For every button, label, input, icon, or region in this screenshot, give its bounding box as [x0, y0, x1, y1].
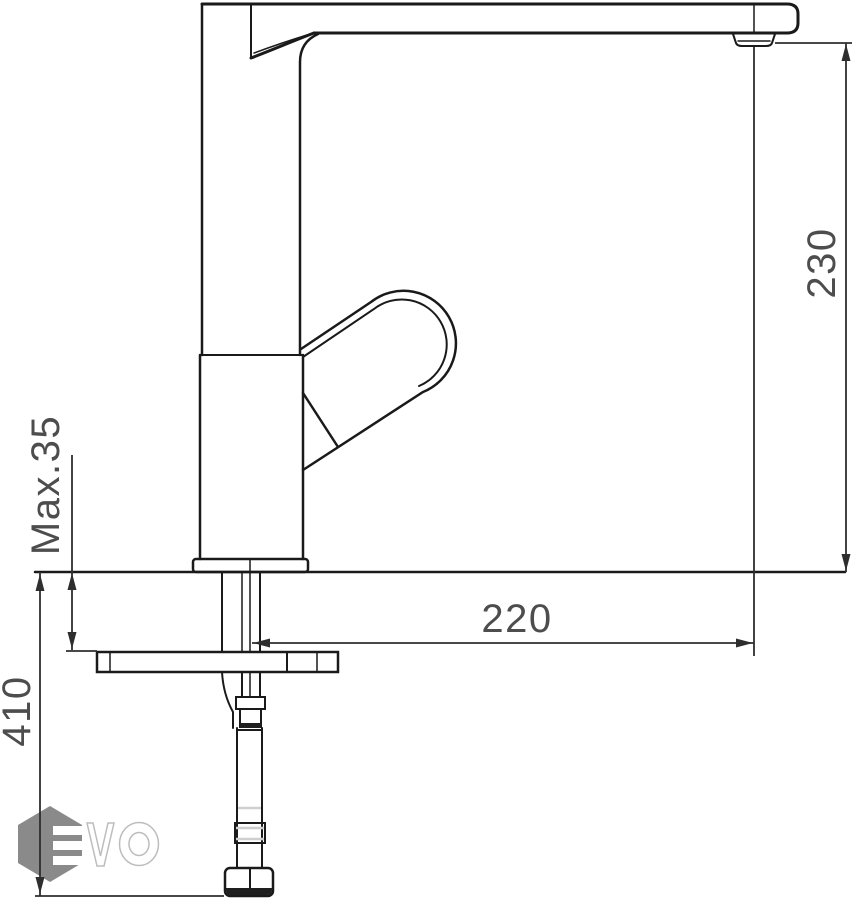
dim-label-220: 220: [481, 597, 552, 641]
dim-label-max35: Max.35: [24, 415, 68, 555]
dimension-counter-thickness: Max.35: [24, 415, 97, 651]
dim-label-410: 410: [0, 675, 39, 746]
faucet-technical-drawing: 230 220 Max.35 410: [0, 0, 854, 900]
faucet-outline: [35, 4, 845, 896]
dim-label-230: 230: [800, 227, 844, 298]
faucet-column: [200, 4, 318, 559]
aerator: [733, 34, 775, 46]
drawing-canvas: 230 220 Max.35 410: [0, 0, 854, 900]
hose-end-nut: [225, 868, 273, 896]
under-counter-assembly: [97, 572, 338, 672]
logo-e-bars: [53, 826, 84, 865]
spout-bar: [202, 4, 798, 58]
dimension-spout-reach: 220: [252, 47, 754, 656]
dimension-spout-height: 230: [775, 43, 852, 572]
base-flange: [193, 559, 308, 572]
supply-hose: [222, 672, 273, 896]
logo-letters-vo: [87, 823, 159, 867]
handle-loop: [301, 291, 456, 470]
evo-logo: [18, 806, 159, 882]
